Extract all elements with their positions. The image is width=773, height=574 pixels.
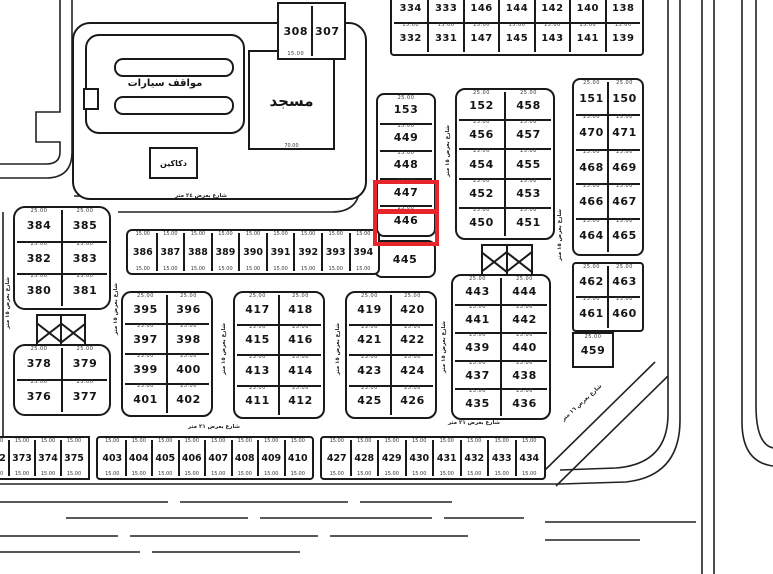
plot-cell[interactable]: 465	[607, 220, 640, 252]
plot-cell[interactable]: 381	[61, 275, 107, 306]
plot-number: 395	[133, 303, 157, 316]
plot-number: 334	[400, 3, 422, 14]
plot-row: 152 458	[459, 92, 551, 121]
plot-cell[interactable]: 422	[390, 326, 433, 355]
plot-row: 462 463	[576, 266, 640, 298]
dim-label	[356, 232, 370, 237]
plot-cell[interactable]: 443	[455, 278, 500, 304]
plot-cell[interactable]: 399	[125, 355, 166, 383]
dim-label	[301, 232, 315, 237]
block-450s: 152 458 456 457 454 455 452 453 450 451	[455, 88, 555, 240]
dim-label	[15, 439, 29, 444]
plot-cell[interactable]: 333	[427, 0, 462, 22]
plot-cell[interactable]: 415	[237, 326, 278, 355]
dim-label	[31, 380, 48, 385]
parking-island	[114, 96, 234, 115]
plot-number: 406	[182, 453, 202, 464]
dim-label	[583, 219, 600, 224]
dim-label	[249, 355, 266, 360]
dim-label	[357, 472, 371, 477]
dim-label	[385, 472, 399, 477]
plot-cell[interactable]: 387	[158, 233, 186, 271]
dim-label	[509, 23, 526, 28]
plot-cell[interactable]: 425	[349, 387, 390, 416]
plot-number: 388	[188, 247, 208, 258]
plot-cell[interactable]: 143	[534, 24, 569, 52]
plot-row: 419 420	[349, 295, 433, 326]
plot-cell[interactable]: 455	[504, 150, 551, 177]
plot-cell[interactable]: 462	[576, 266, 607, 296]
dim-label	[473, 208, 490, 213]
plot-number: 376	[27, 390, 51, 403]
plot-number: 451	[516, 216, 540, 229]
dim-label	[438, 23, 455, 28]
dim-label	[15, 472, 29, 477]
dim-label	[385, 439, 399, 444]
plot-cell[interactable]: 456	[459, 121, 504, 148]
dim-label	[473, 23, 490, 28]
plot-cell[interactable]: 389	[213, 233, 241, 271]
plot-cell[interactable]: 467	[607, 185, 640, 217]
plot-number: 143	[541, 33, 563, 44]
plot-row: 437 438	[455, 362, 547, 390]
plot-cell[interactable]: 458	[504, 92, 551, 119]
dim-label	[264, 472, 278, 477]
plot-cell[interactable]: 471	[607, 116, 640, 148]
dim-label	[0, 472, 3, 477]
plot-number: 429	[382, 453, 402, 464]
plot-number: 398	[176, 333, 200, 346]
plot-cell[interactable]: 153	[380, 97, 432, 123]
plot-cell[interactable]: 139	[605, 24, 640, 52]
plot-cell[interactable]: 372	[0, 440, 10, 476]
plot-cell[interactable]: 140	[569, 0, 604, 22]
plot-number: 414	[288, 364, 312, 377]
plot-cell[interactable]: 450	[459, 209, 504, 236]
plot-cell[interactable]: 416	[278, 326, 321, 355]
plot-number: 431	[437, 453, 457, 464]
plot-cell[interactable]: 396	[166, 295, 209, 323]
plot-cell[interactable]: 382	[17, 243, 61, 274]
dim-label	[495, 439, 509, 444]
plot-cell[interactable]: 470	[576, 116, 607, 148]
plot-number: 434	[519, 453, 539, 464]
plot-row: 452 453	[459, 180, 551, 209]
plot-cell[interactable]: 463	[607, 266, 640, 296]
plot-row: 378 379	[17, 348, 107, 381]
plot-cell[interactable]: 392	[295, 233, 323, 271]
dim-label	[398, 151, 415, 156]
plot-number: 413	[245, 364, 269, 377]
plot-cell[interactable]: 426	[390, 387, 433, 416]
plot-number: 445	[393, 253, 417, 266]
dim-label	[616, 81, 633, 86]
dim-label	[292, 386, 309, 391]
plot-cell[interactable]: 393	[323, 233, 351, 271]
plot-number: 382	[27, 252, 51, 265]
plot-cell[interactable]: 434	[517, 440, 543, 476]
dim-label	[180, 384, 197, 389]
dim-label	[291, 439, 305, 444]
plot-number: 425	[357, 394, 381, 407]
dim-label	[467, 439, 481, 444]
plot-cell[interactable]: 438	[500, 362, 547, 388]
plot-cell[interactable]: 375	[62, 440, 86, 476]
plot-cell[interactable]: 373	[10, 440, 36, 476]
plot-row: 415 416	[237, 326, 321, 357]
plot-cell[interactable]: 412	[278, 387, 321, 416]
dim-label	[402, 23, 419, 28]
plot-number: 420	[400, 303, 424, 316]
plot-number: 393	[326, 247, 346, 258]
dim-label	[292, 294, 309, 299]
plot-number: 436	[512, 397, 536, 410]
plot-cell[interactable]: 145	[498, 24, 533, 52]
plot-cell[interactable]: 441	[455, 306, 500, 332]
plot-cell[interactable]: 409	[259, 440, 286, 476]
dim-label	[191, 267, 205, 272]
plot-cell[interactable]: 405	[153, 440, 180, 476]
plot-cell[interactable]: 448	[380, 152, 432, 178]
dim-label	[516, 277, 533, 282]
plot-number: 461	[579, 307, 603, 320]
dim-label	[185, 439, 199, 444]
plot-number: 374	[38, 453, 58, 464]
plot-cell[interactable]: 417	[237, 295, 278, 324]
plot-cell[interactable]: 466	[576, 185, 607, 217]
plot-cell[interactable]: 452	[459, 180, 504, 207]
plot-number: 421	[357, 333, 381, 346]
plot-row: 382 383	[17, 243, 107, 276]
dim-label	[291, 472, 305, 477]
plot-cell[interactable]: 424	[390, 356, 433, 385]
plot-number: 417	[245, 303, 269, 316]
dim-label	[616, 150, 633, 155]
dim-label	[516, 389, 533, 394]
plot-cell[interactable]: 442	[500, 306, 547, 332]
dim-label	[473, 149, 490, 154]
plot-cell[interactable]: 402	[166, 385, 209, 413]
street-label: شارع بعرض ١٥ متر	[335, 323, 341, 375]
dim-label	[583, 297, 600, 302]
plot-cell[interactable]: 418	[278, 295, 321, 324]
plot-cell[interactable]: 391	[268, 233, 296, 271]
plot-cell[interactable]: 378	[17, 348, 61, 379]
plot-number: 381	[73, 284, 97, 297]
plot-number: 422	[400, 333, 424, 346]
dim-label	[77, 380, 94, 385]
dim-label	[516, 361, 533, 366]
dim-label	[522, 472, 536, 477]
plot-cell[interactable]: 411	[237, 387, 278, 416]
plot-number: 389	[216, 247, 236, 258]
plot-number: 150	[612, 92, 636, 105]
plot-cell[interactable]: 419	[349, 295, 390, 324]
dim-label	[398, 96, 415, 101]
plot-cell[interactable]: 400	[166, 355, 209, 383]
plot-cell[interactable]: 138	[605, 0, 640, 22]
plot-cell[interactable]: 433	[489, 440, 517, 476]
dim-label	[31, 274, 48, 279]
plot-cell[interactable]: 141	[569, 24, 604, 52]
plot-number: 450	[469, 216, 493, 229]
plot-cell[interactable]: 390	[240, 233, 268, 271]
plot-row: 376 377	[17, 381, 107, 412]
plot-cell[interactable]: 439	[455, 334, 500, 360]
parking-annex	[83, 88, 99, 110]
dim-label	[357, 439, 371, 444]
plot-cell[interactable]: 435	[455, 390, 500, 416]
plot-number: 444	[512, 285, 536, 298]
dim-label	[31, 209, 48, 214]
plot-number: 396	[176, 303, 200, 316]
dim-label	[163, 267, 177, 272]
plot-cell[interactable]: 413	[237, 356, 278, 385]
plot-cell[interactable]: 374	[36, 440, 62, 476]
plot-cell[interactable]: 384	[17, 210, 61, 241]
plot-cell[interactable]: 308	[281, 6, 311, 56]
plot-cell[interactable]: 403	[100, 440, 127, 476]
plot-cell[interactable]: 385	[61, 210, 107, 241]
plot-cell[interactable]: 432	[462, 440, 490, 476]
plot-cell[interactable]: 454	[459, 150, 504, 177]
dim-label	[516, 333, 533, 338]
dim-label	[136, 232, 150, 237]
plot-number: 428	[354, 453, 374, 464]
dim-label	[473, 91, 490, 96]
plot-number: 146	[470, 3, 492, 14]
plot-cell[interactable]: 445	[378, 244, 432, 274]
dim-label	[163, 232, 177, 237]
plot-number: 410	[288, 453, 308, 464]
dim-label	[469, 361, 486, 366]
dim-label	[132, 439, 146, 444]
street-label: شارع بعرض ١٥ متر	[221, 323, 227, 375]
dim-label	[520, 120, 537, 125]
plot-number: 384	[27, 219, 51, 232]
plot-row: 441 442	[455, 306, 547, 334]
plot-cell[interactable]: 408	[233, 440, 260, 476]
dim-label	[516, 305, 533, 310]
plot-cell[interactable]: 461	[576, 298, 607, 328]
plot-cell[interactable]: 404	[127, 440, 154, 476]
plot-number: 466	[579, 195, 603, 208]
dim-label	[330, 439, 344, 444]
dim-label	[218, 232, 232, 237]
dim-label	[469, 333, 486, 338]
plot-cell[interactable]: 421	[349, 326, 390, 355]
dim-label	[440, 472, 454, 477]
street-label: شارع بعرض ١٥ متر	[445, 125, 451, 177]
plot-number: 373	[12, 453, 32, 464]
dim-label	[520, 149, 537, 154]
plot-number: 379	[73, 357, 97, 370]
plot-cell[interactable]: 383	[61, 243, 107, 274]
plot-cell[interactable]: 440	[500, 334, 547, 360]
dim-label	[583, 81, 600, 86]
plot-cell[interactable]: 406	[180, 440, 207, 476]
dim-label	[301, 267, 315, 272]
plot-cell[interactable]: 427	[324, 440, 352, 476]
dim-label	[616, 184, 633, 189]
shops-label: دكاكين	[151, 159, 196, 168]
block-right-column-upper: 151 150 470 471 468 469 466 467 464 465	[572, 78, 644, 256]
plot-number: 418	[288, 303, 312, 316]
dim-label	[361, 386, 378, 391]
plot-cell[interactable]: 444	[500, 278, 547, 304]
block-459: 459	[572, 332, 614, 368]
plot-cell[interactable]: 146	[463, 0, 498, 22]
plot-cell[interactable]: 457	[504, 121, 551, 148]
plot-cell[interactable]: 386	[130, 233, 158, 271]
plot-number: 380	[27, 284, 51, 297]
plot-cell[interactable]: 147	[463, 24, 498, 52]
plot-number: 385	[73, 219, 97, 232]
plot-cell[interactable]: 460	[607, 298, 640, 328]
dim-label	[404, 386, 421, 391]
plot-row: 417 418	[237, 295, 321, 326]
plot-cell[interactable]: 436	[500, 390, 547, 416]
plot-cell[interactable]: 398	[166, 325, 209, 353]
plot-cell[interactable]: 407	[206, 440, 233, 476]
plot-number: 142	[541, 3, 563, 14]
plot-row: 461 460	[576, 298, 640, 328]
plot-cell[interactable]: 332	[394, 24, 427, 52]
plot-row: 425 426	[349, 387, 433, 416]
plot-cell[interactable]: 376	[17, 381, 61, 412]
plot-cell[interactable]: 380	[17, 275, 61, 306]
dim-label	[180, 354, 197, 359]
plot-cell[interactable]: 151	[576, 82, 607, 114]
plot-cell[interactable]: 430	[407, 440, 435, 476]
plot-number: 453	[516, 187, 540, 200]
plot-cell[interactable]: 451	[504, 209, 551, 236]
plot-cell[interactable]: 420	[390, 295, 433, 324]
block-420s: 419 420 421 422 423 424 425 426	[345, 291, 437, 419]
plot-cell[interactable]: 334	[394, 0, 427, 22]
dim-label	[583, 265, 600, 270]
plot-number: 426	[400, 394, 424, 407]
block-370s: 378 379 376 377	[13, 344, 111, 416]
plot-cell[interactable]: 464	[576, 220, 607, 252]
highlight-plot-447[interactable]	[373, 180, 439, 213]
plot-number: 139	[612, 33, 634, 44]
plot-number: 390	[243, 247, 263, 258]
plot-cell[interactable]: 469	[607, 151, 640, 183]
dim-label	[495, 472, 509, 477]
plot-cell[interactable]: 459	[576, 336, 610, 364]
dim-label	[330, 472, 344, 477]
dim-label	[246, 267, 260, 272]
plot-cell[interactable]: 423	[349, 356, 390, 385]
plot-cell[interactable]: 307	[311, 6, 343, 56]
plot-cell[interactable]: 468	[576, 151, 607, 183]
plot-number: 460	[612, 307, 636, 320]
plot-row: 153	[380, 97, 432, 125]
plot-row: 443 444	[455, 278, 547, 306]
dim-label	[191, 232, 205, 237]
plot-number: 424	[400, 364, 424, 377]
plot-number: 387	[160, 247, 180, 258]
plot-number: 454	[469, 158, 493, 171]
plot-cell[interactable]: 152	[459, 92, 504, 119]
plot-row: 380 381	[17, 275, 107, 306]
dim-label	[520, 91, 537, 96]
dim-label	[404, 325, 421, 330]
block-400s-strip: 403404405406407408409410	[96, 436, 314, 480]
plot-cell[interactable]: 410	[286, 440, 311, 476]
plot-cell[interactable]: 414	[278, 356, 321, 385]
plot-cell[interactable]: 453	[504, 180, 551, 207]
dim-label	[412, 472, 426, 477]
plot-number: 470	[579, 126, 603, 139]
dim-label	[105, 472, 119, 477]
plot-cell[interactable]: 150	[607, 82, 640, 114]
dim-label	[579, 23, 596, 28]
plot-number: 307	[315, 25, 339, 38]
plot-number: 456	[469, 128, 493, 141]
plot-row: 401 402	[125, 385, 209, 413]
plot-cell[interactable]: 397	[125, 325, 166, 353]
plot-row: 413 414	[237, 356, 321, 387]
plot-cell[interactable]: 449	[380, 125, 432, 151]
block-370s-strip: 372373374375	[0, 436, 90, 480]
plot-cell[interactable]: 379	[61, 348, 107, 379]
dim-label	[218, 267, 232, 272]
dim-label	[520, 179, 537, 184]
dim-label	[469, 277, 486, 282]
plot-number: 408	[235, 453, 255, 464]
plot-number: 375	[64, 453, 84, 464]
plot-row: 450 451	[459, 209, 551, 236]
plot-row: 151 150	[576, 82, 640, 116]
plot-number: 438	[512, 369, 536, 382]
plot-number: 386	[133, 247, 153, 258]
dim-label	[583, 184, 600, 189]
plot-number: 419	[357, 303, 381, 316]
plot-cell[interactable]: 377	[61, 381, 107, 412]
plot-cell[interactable]: 142	[534, 0, 569, 22]
plot-cell[interactable]: 331	[427, 24, 462, 52]
plot-number: 458	[516, 99, 540, 112]
plot-cell[interactable]: 437	[455, 362, 500, 388]
plot-cell[interactable]: 388	[185, 233, 213, 271]
dim-label	[329, 267, 343, 272]
plot-number: 437	[465, 369, 489, 382]
plot-number: 457	[516, 128, 540, 141]
plot-cell[interactable]: 428	[352, 440, 380, 476]
dim-label	[616, 219, 633, 224]
plot-cell[interactable]: 144	[498, 0, 533, 22]
plot-number: 153	[394, 103, 418, 116]
dim-label	[273, 267, 287, 272]
plot-row: 308 307	[281, 6, 342, 56]
plot-cell[interactable]: 395	[125, 295, 166, 323]
dim-label	[544, 23, 561, 28]
plot-row: 399 400	[125, 355, 209, 385]
highlight-plot-446[interactable]	[373, 210, 439, 246]
plot-cell[interactable]: 429	[379, 440, 407, 476]
plot-number: 463	[612, 275, 636, 288]
parking-area: مواقف سيارات	[85, 34, 245, 134]
plot-number: 409	[261, 453, 281, 464]
dim-label	[249, 294, 266, 299]
plot-cell[interactable]: 431	[434, 440, 462, 476]
plot-cell[interactable]: 401	[125, 385, 166, 413]
plot-number: 377	[73, 390, 97, 403]
dim-label	[264, 439, 278, 444]
dim-label	[77, 274, 94, 279]
